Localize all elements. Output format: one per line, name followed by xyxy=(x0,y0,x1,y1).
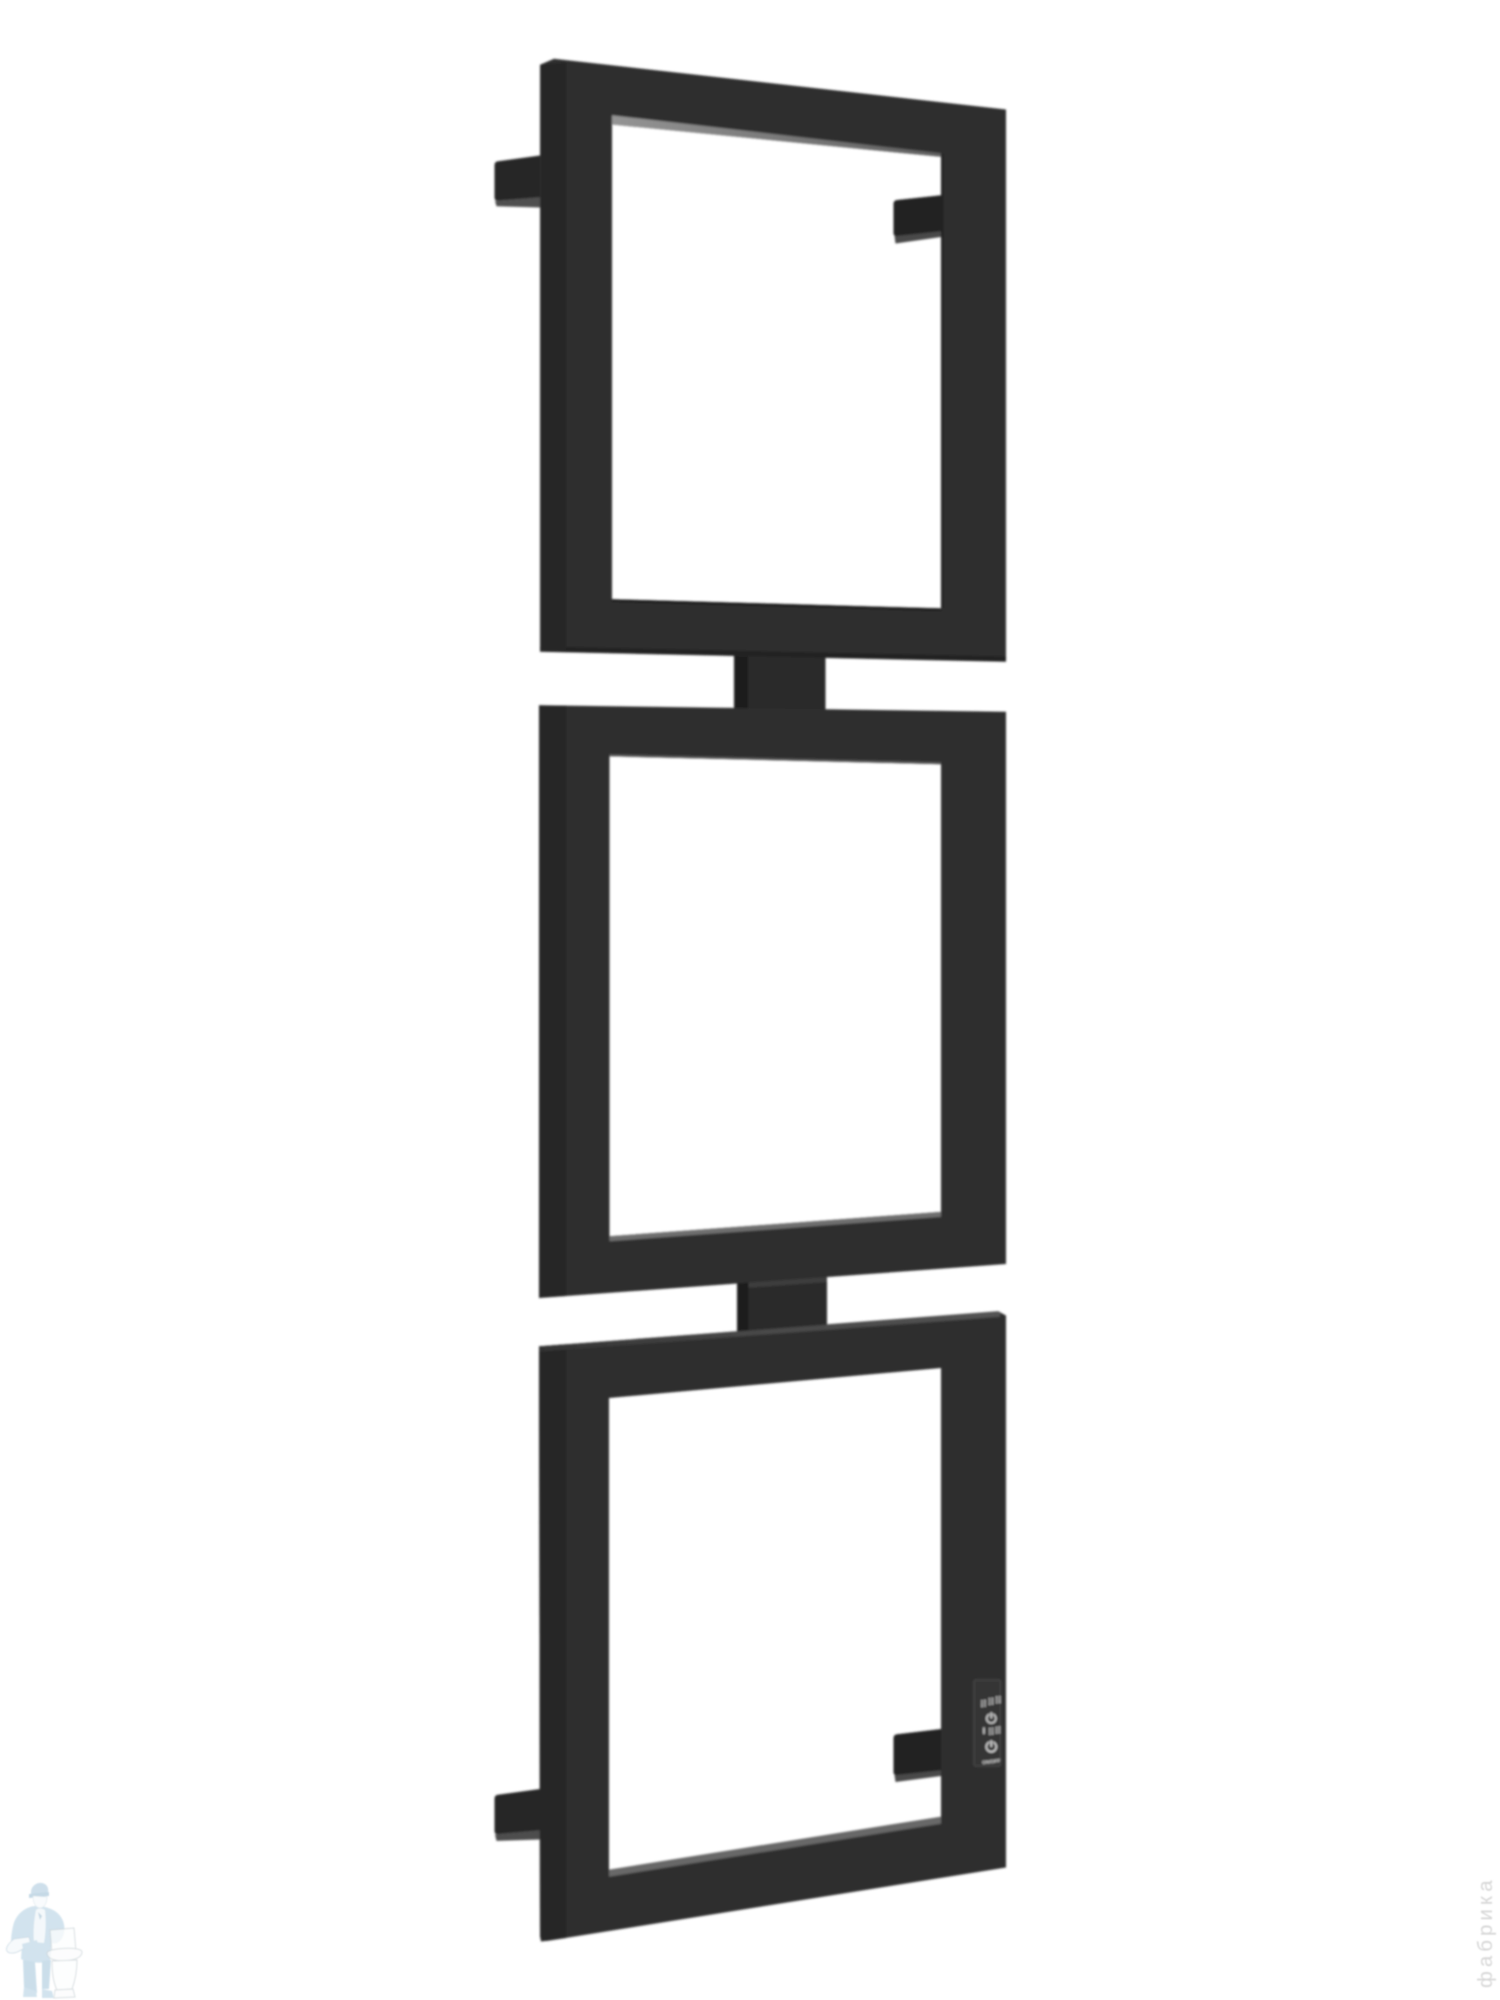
svg-text:фабрика: фабрика xyxy=(1474,1876,1497,1988)
